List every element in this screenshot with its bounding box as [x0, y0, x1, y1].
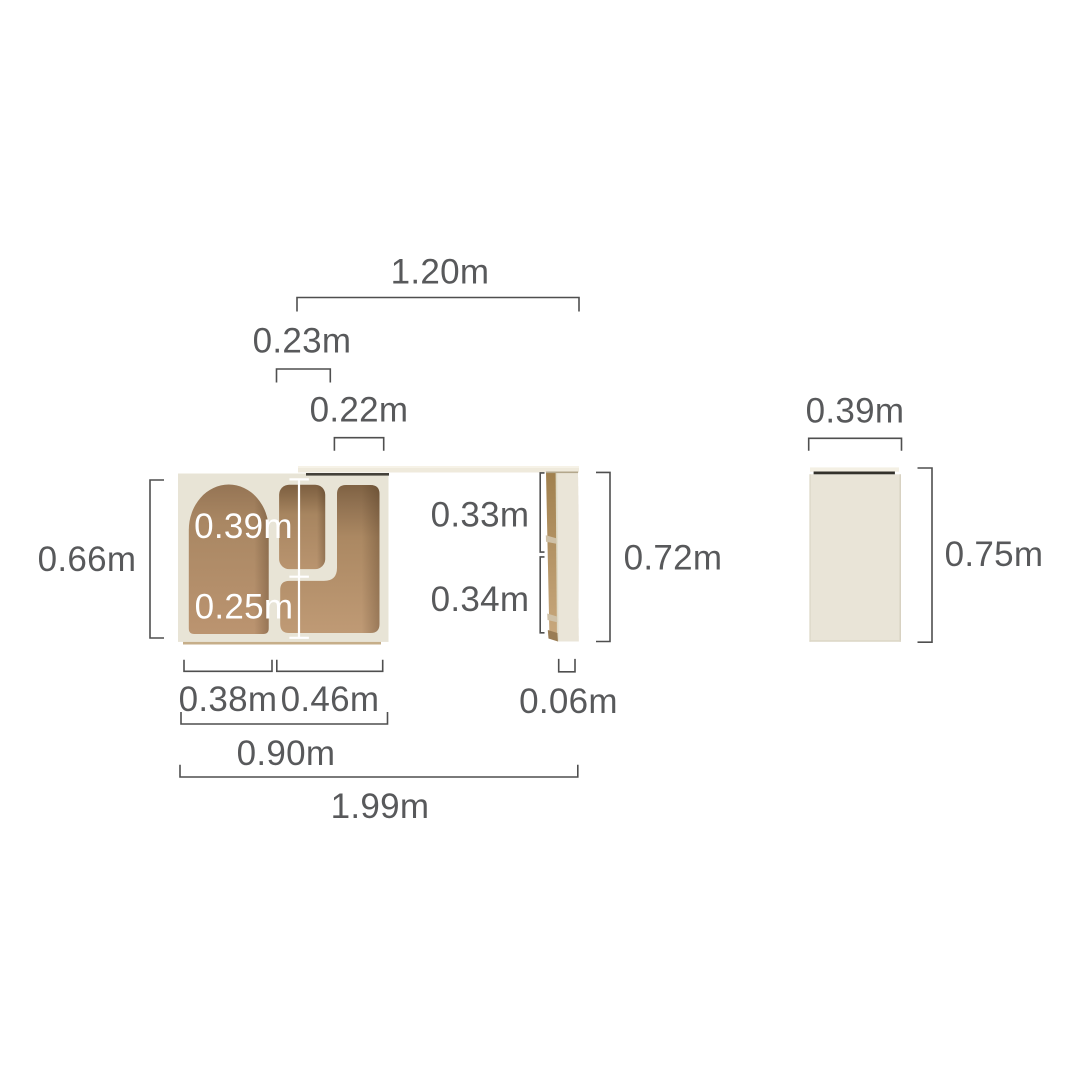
svg-text:0.25m: 0.25m — [195, 588, 294, 627]
svg-text:0.33m: 0.33m — [431, 496, 530, 535]
svg-text:1.20m: 1.20m — [391, 252, 490, 291]
svg-text:0.38m: 0.38m — [179, 680, 278, 719]
svg-text:0.23m: 0.23m — [253, 321, 352, 360]
svg-text:0.39m: 0.39m — [194, 507, 293, 546]
svg-text:0.66m: 0.66m — [38, 540, 137, 579]
svg-text:0.39m: 0.39m — [806, 392, 905, 431]
svg-text:0.90m: 0.90m — [237, 734, 336, 773]
svg-text:0.22m: 0.22m — [310, 390, 409, 429]
svg-text:1.99m: 1.99m — [331, 787, 430, 826]
svg-text:0.46m: 0.46m — [281, 680, 380, 719]
svg-text:0.72m: 0.72m — [624, 539, 723, 578]
svg-text:0.75m: 0.75m — [945, 535, 1044, 574]
svg-text:0.34m: 0.34m — [431, 580, 530, 619]
svg-text:0.06m: 0.06m — [519, 682, 618, 721]
